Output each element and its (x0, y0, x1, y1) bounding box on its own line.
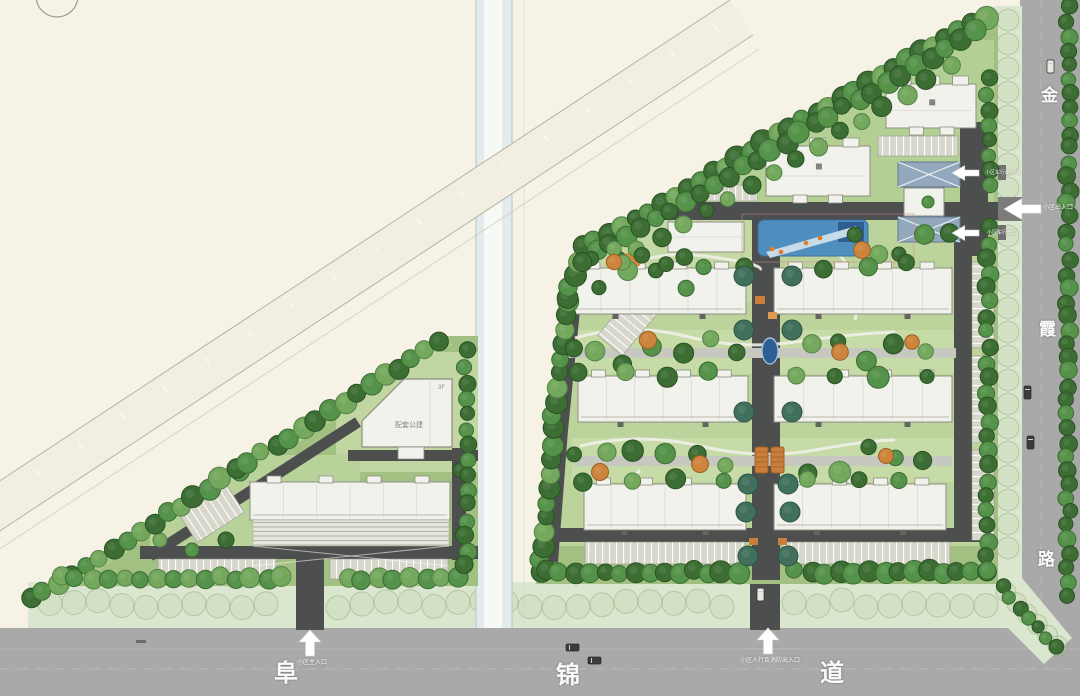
site-plan-viewport: 金 霞 路 阜 锦 道 小区主入口 小区人行及消防出入口 小区出入口 小区车行出… (0, 0, 1080, 696)
east-road-name-char3: 路 (1038, 551, 1055, 568)
east-lower-entrance-label: 小区车行出口 (987, 231, 1017, 236)
south-road-name-char2: 锦 (556, 664, 580, 688)
east-road-name-char2: 霞 (1039, 321, 1056, 338)
south-road-name-char3: 道 (820, 662, 844, 686)
east-main-entrance-label: 小区出入口 (1043, 205, 1073, 211)
south-road-name-char1: 阜 (274, 662, 298, 686)
south-main-entrance-label: 小区主入口 (297, 660, 327, 666)
support-public-building-label: 配套公建 (395, 422, 423, 429)
south-fire-entrance-label: 小区人行及消防出入口 (740, 658, 800, 664)
site-plan-canvas (0, 0, 1080, 696)
east-upper-entrance-label: 小区车行出入口 (985, 171, 1020, 176)
support-public-floor-label: 3F (438, 385, 445, 391)
east-road-name-char1: 金 (1041, 87, 1058, 104)
